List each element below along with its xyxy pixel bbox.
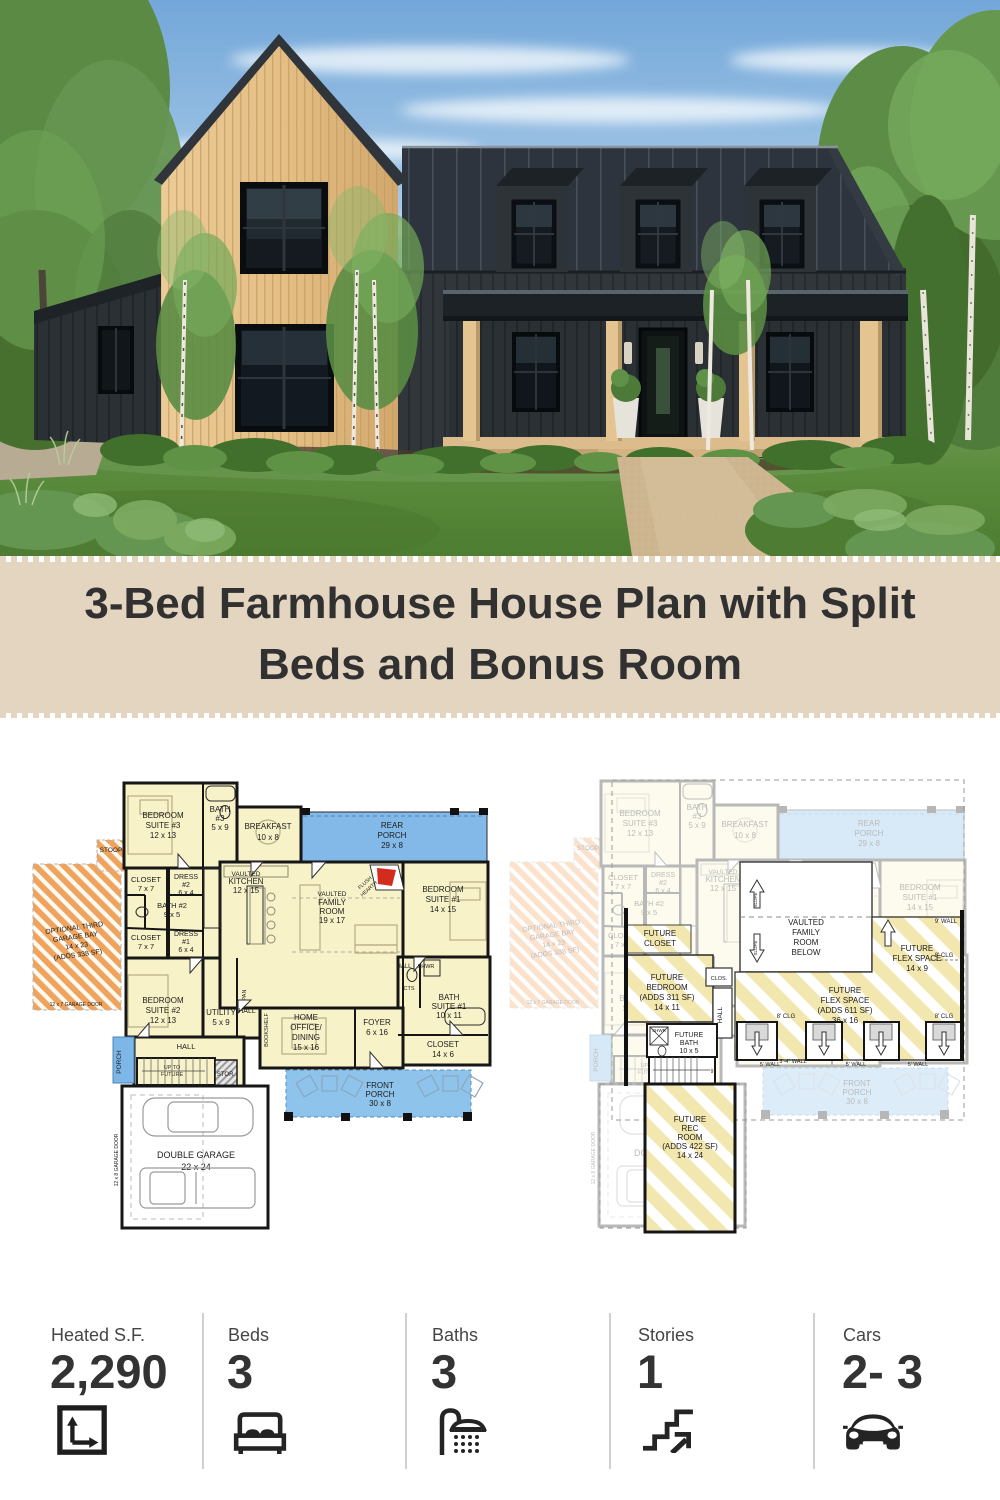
svg-text:6 x 4: 6 x 4	[178, 890, 193, 897]
svg-text:ROOM: ROOM	[794, 938, 819, 947]
svg-text:#3: #3	[216, 814, 225, 823]
svg-text:SUITE #2: SUITE #2	[146, 1006, 181, 1015]
svg-text:5' WALL: 5' WALL	[760, 1062, 780, 1068]
svg-text:12 x 8 GARAGE DOOR: 12 x 8 GARAGE DOOR	[114, 1133, 120, 1186]
svg-text:CLOS.: CLOS.	[711, 976, 728, 982]
svg-text:PAN: PAN	[242, 990, 248, 1001]
svg-text:HALL: HALL	[177, 1042, 196, 1051]
svg-text:FUTURE: FUTURE	[651, 973, 683, 982]
svg-text:BATH: BATH	[439, 993, 460, 1002]
svg-text:BEDROOM: BEDROOM	[646, 983, 688, 992]
svg-text:14 x 24: 14 x 24	[677, 1151, 704, 1160]
svg-text:CTS: CTS	[404, 986, 415, 992]
svg-text:FRONT: FRONT	[366, 1081, 394, 1090]
svg-text:FAMILY: FAMILY	[318, 898, 347, 907]
svg-text:HALL: HALL	[396, 964, 412, 970]
svg-text:12 x 15: 12 x 15	[233, 886, 260, 895]
svg-text:SUITE #3: SUITE #3	[146, 821, 181, 830]
svg-text:14 x 9: 14 x 9	[906, 964, 928, 973]
svg-text:7 x 7: 7 x 7	[138, 942, 154, 951]
svg-text:BATH #2: BATH #2	[157, 901, 187, 910]
svg-text:10 x 8: 10 x 8	[257, 833, 279, 842]
svg-text:(ADDS 311 SF): (ADDS 311 SF)	[640, 993, 695, 1002]
svg-text:(ADDS 422 SF): (ADDS 422 SF)	[662, 1142, 718, 1151]
svg-text:SHWR: SHWR	[652, 1028, 666, 1033]
svg-text:FUTURE: FUTURE	[161, 1072, 184, 1078]
svg-text:ROOM: ROOM	[678, 1133, 703, 1142]
svg-text:BEDROOM: BEDROOM	[422, 885, 464, 894]
svg-text:6 x 16: 6 x 16	[366, 1028, 388, 1037]
svg-text:SHWR: SHWR	[418, 964, 435, 970]
svg-text:HALL: HALL	[717, 1006, 724, 1023]
svg-text:SLOPE: SLOPE	[753, 940, 758, 955]
svg-text:UTILITY: UTILITY	[206, 1008, 236, 1017]
svg-text:(ADDS 611 SF): (ADDS 611 SF)	[818, 1006, 873, 1015]
svg-text:STOOP: STOOP	[100, 847, 123, 854]
svg-text:OFFICE/: OFFICE/	[290, 1023, 322, 1032]
svg-text:29 x 8: 29 x 8	[381, 841, 403, 850]
svg-text:DRESS: DRESS	[174, 931, 198, 938]
svg-text:5 x 9: 5 x 9	[212, 1018, 230, 1027]
svg-text:CLOSET: CLOSET	[131, 875, 161, 884]
svg-text:BELOW: BELOW	[792, 948, 821, 957]
svg-text:9' WALL: 9' WALL	[935, 919, 958, 925]
svg-text:5' WALL: 5' WALL	[846, 1062, 866, 1068]
svg-text:#1: #1	[182, 939, 190, 946]
svg-text:DOUBLE GARAGE: DOUBLE GARAGE	[157, 1150, 235, 1160]
svg-text:12 x 13: 12 x 13	[150, 1016, 177, 1025]
svg-text:BREAKFAST: BREAKFAST	[244, 822, 291, 831]
svg-text:FOYER: FOYER	[363, 1018, 391, 1027]
svg-text:PORCH: PORCH	[378, 831, 407, 840]
svg-text:FLEX SPACE: FLEX SPACE	[821, 996, 870, 1005]
svg-text:8' CLG: 8' CLG	[777, 1014, 796, 1020]
svg-text:BEDROOM: BEDROOM	[142, 811, 184, 820]
svg-text:FUTURE: FUTURE	[829, 986, 861, 995]
svg-text:VAULTED: VAULTED	[317, 891, 346, 898]
svg-text:DINING: DINING	[292, 1033, 320, 1042]
svg-text:FUTURE: FUTURE	[675, 1032, 704, 1039]
svg-text:FUTURE: FUTURE	[674, 1115, 706, 1124]
svg-text:BATH: BATH	[680, 1040, 698, 1047]
svg-text:UP TO: UP TO	[164, 1065, 181, 1071]
svg-text:VAULTED: VAULTED	[788, 918, 824, 927]
svg-text:14 x 15: 14 x 15	[430, 905, 457, 914]
svg-text:19 x 17: 19 x 17	[319, 916, 346, 925]
svg-text:9 x 5: 9 x 5	[164, 910, 180, 919]
svg-text:7 x 7: 7 x 7	[138, 884, 154, 893]
svg-text:PORCH: PORCH	[366, 1090, 395, 1099]
svg-text:14 x 6: 14 x 6	[432, 1050, 454, 1059]
svg-text:SLOPE: SLOPE	[753, 892, 758, 907]
svg-text:8' CLG: 8' CLG	[935, 953, 954, 959]
svg-text:BEDROOM: BEDROOM	[142, 996, 184, 1005]
svg-text:FUTURE: FUTURE	[644, 929, 676, 938]
svg-text:KITCHEN: KITCHEN	[228, 877, 263, 886]
svg-text:BATH: BATH	[210, 805, 231, 814]
svg-text:30 x 8: 30 x 8	[369, 1099, 391, 1108]
svg-text:FUTURE: FUTURE	[901, 944, 933, 953]
svg-text:HOME: HOME	[294, 1013, 318, 1022]
svg-text:12 x 13: 12 x 13	[150, 831, 177, 840]
svg-text:8' CLG: 8' CLG	[935, 1014, 954, 1020]
svg-text:SUITE #1: SUITE #1	[426, 895, 461, 904]
svg-text:9: 9	[711, 1069, 714, 1075]
svg-text:REC: REC	[682, 1124, 699, 1133]
svg-text:10 x 11: 10 x 11	[436, 1011, 462, 1020]
svg-text:FAMILY: FAMILY	[792, 928, 821, 937]
svg-text:ROOM: ROOM	[320, 907, 345, 916]
svg-text:12 x 7 GARAGE DOOR: 12 x 7 GARAGE DOOR	[50, 1002, 103, 1008]
svg-text:STOR.: STOR.	[217, 1072, 236, 1078]
svg-text:CLOSET: CLOSET	[644, 939, 676, 948]
svg-text:CLOSET: CLOSET	[131, 933, 161, 942]
svg-text:10 x 5: 10 x 5	[679, 1048, 698, 1055]
svg-text:PORCH: PORCH	[116, 1050, 123, 1074]
svg-text:5' WALL: 5' WALL	[908, 1062, 928, 1068]
svg-text:SUITE #1: SUITE #1	[432, 1002, 467, 1011]
svg-text:15 x 16: 15 x 16	[293, 1043, 320, 1052]
svg-text:BOOKSHELF: BOOKSHELF	[264, 1013, 270, 1047]
svg-text:DRESS: DRESS	[174, 874, 198, 881]
svg-text:REAR: REAR	[381, 821, 403, 830]
svg-text:5 x 9: 5 x 9	[211, 823, 229, 832]
svg-text:22 x 24: 22 x 24	[181, 1162, 211, 1172]
svg-text:14 x 11: 14 x 11	[654, 1003, 680, 1012]
svg-text:CLOSET: CLOSET	[427, 1040, 459, 1049]
svg-text:6 x 4: 6 x 4	[178, 947, 193, 954]
svg-text:3'-4" WALL: 3'-4" WALL	[779, 1059, 806, 1065]
svg-text:HALL: HALL	[238, 1008, 256, 1015]
svg-text:#2: #2	[182, 882, 190, 889]
